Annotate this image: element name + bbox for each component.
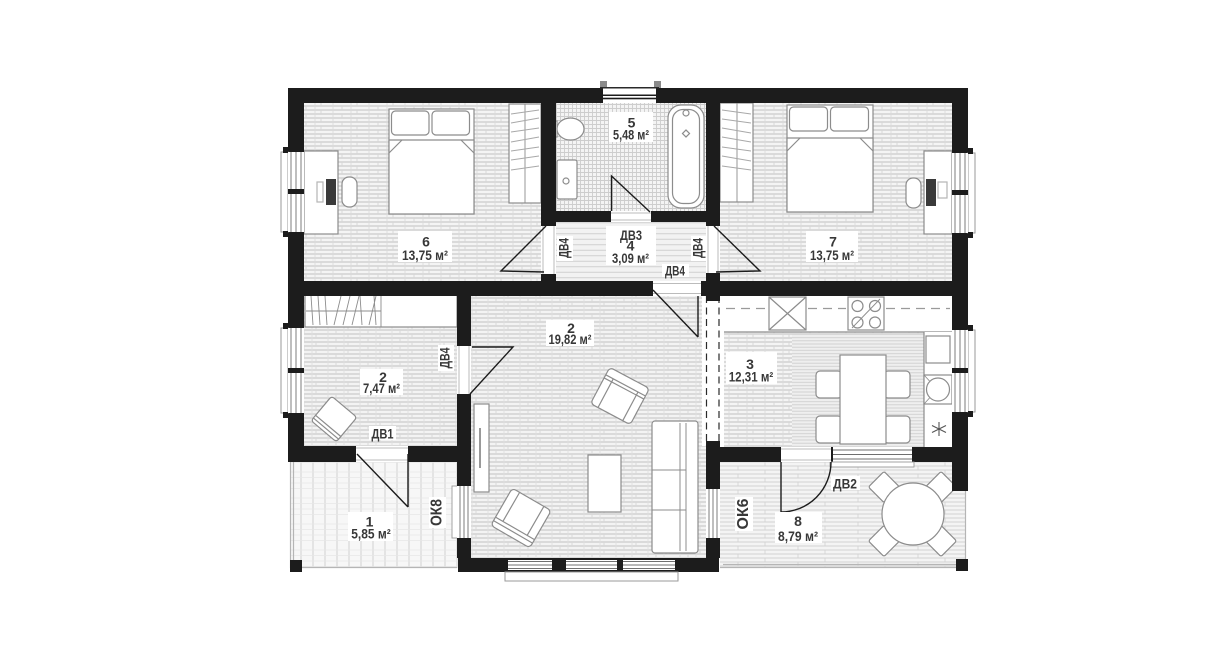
svg-text:3,09 м²: 3,09 м²: [612, 250, 649, 266]
svg-text:19,82 м²: 19,82 м²: [549, 331, 592, 347]
svg-text:8: 8: [794, 513, 802, 529]
svg-text:ДВ4: ДВ4: [556, 238, 572, 258]
svg-text:13,75 м²: 13,75 м²: [402, 247, 448, 263]
svg-text:ДВ1: ДВ1: [372, 426, 394, 442]
svg-text:ОК6: ОК6: [735, 498, 752, 529]
svg-text:ОК8: ОК8: [429, 499, 446, 526]
svg-text:5,85 м²: 5,85 м²: [351, 526, 391, 542]
svg-text:ДВ4: ДВ4: [437, 347, 453, 368]
svg-text:5,48 м²: 5,48 м²: [613, 127, 649, 143]
svg-text:ДВ2: ДВ2: [833, 476, 857, 492]
svg-text:13,75 м²: 13,75 м²: [810, 247, 854, 263]
svg-text:ДВ4: ДВ4: [690, 238, 706, 258]
svg-text:7,47 м²: 7,47 м²: [363, 380, 400, 396]
svg-text:8,79 м²: 8,79 м²: [778, 528, 818, 544]
svg-text:12,31 м²: 12,31 м²: [729, 369, 774, 385]
svg-text:ДВ4: ДВ4: [665, 263, 685, 279]
